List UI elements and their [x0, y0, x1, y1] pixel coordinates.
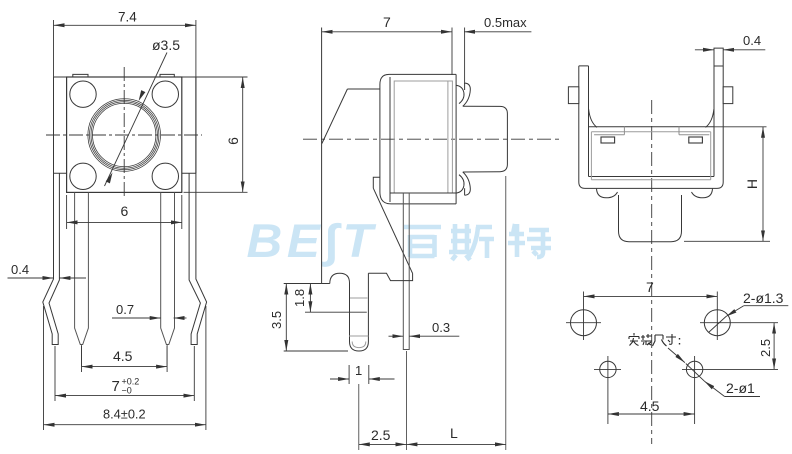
svg-text:0.3: 0.3 — [432, 320, 450, 335]
svg-text:2.5: 2.5 — [371, 427, 391, 443]
svg-text:0.7: 0.7 — [116, 302, 134, 317]
svg-text:0.4: 0.4 — [743, 33, 761, 48]
svg-text:ø3.5: ø3.5 — [152, 37, 180, 53]
svg-text:6: 6 — [121, 203, 129, 219]
svg-text:0.4: 0.4 — [11, 262, 29, 277]
svg-text:7: 7 — [646, 279, 654, 295]
svg-text:3.5: 3.5 — [269, 311, 284, 329]
svg-text:8.4±0.2: 8.4±0.2 — [103, 407, 146, 422]
svg-text:BE∫T: BE∫T — [247, 215, 378, 268]
svg-text:7: 7 — [383, 14, 391, 30]
svg-text:4.5: 4.5 — [640, 398, 660, 414]
svg-text:0.5max: 0.5max — [484, 15, 527, 30]
svg-text:1.8: 1.8 — [292, 289, 307, 307]
svg-text:−0: −0 — [122, 386, 132, 396]
svg-text:7: 7 — [112, 378, 120, 395]
svg-text:L: L — [450, 425, 458, 441]
svg-text:H: H — [744, 179, 760, 189]
svg-text:1: 1 — [355, 363, 362, 378]
svg-text:6: 6 — [225, 137, 241, 145]
svg-text:2-ø1.3: 2-ø1.3 — [743, 290, 784, 306]
svg-text:2.5: 2.5 — [758, 339, 773, 357]
svg-text:7.4: 7.4 — [118, 10, 137, 25]
svg-text:2-ø1: 2-ø1 — [726, 380, 755, 396]
svg-text:4.5: 4.5 — [113, 348, 133, 364]
